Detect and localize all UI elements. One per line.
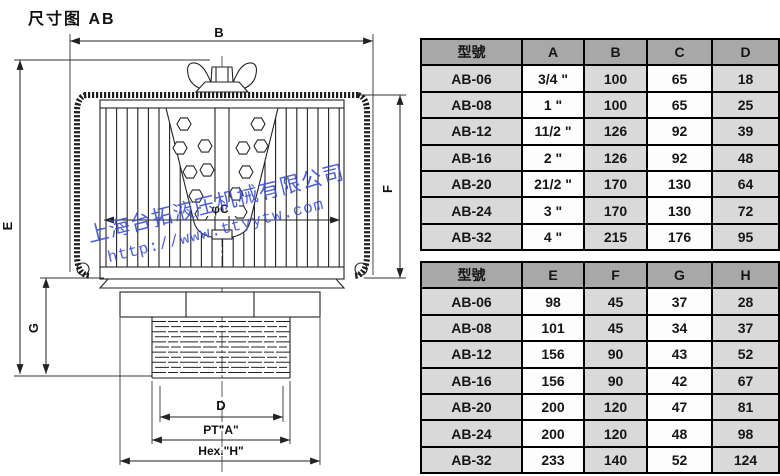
- value-cell: 101: [522, 315, 584, 341]
- table-row: AB-08101453437: [421, 315, 779, 341]
- model-cell: AB-32: [421, 447, 522, 473]
- bolt-end: [212, 230, 232, 239]
- value-cell: 21/2 ": [522, 171, 584, 197]
- value-cell: 124: [712, 447, 779, 473]
- value-cell: 45: [584, 288, 647, 314]
- table-row: AB-242001204898: [421, 420, 779, 446]
- model-cell: AB-08: [421, 92, 522, 118]
- dim-g: G: [26, 278, 104, 374]
- column-header: D: [712, 39, 779, 65]
- hex-flange: [120, 292, 320, 317]
- model-cell: AB-06: [421, 65, 522, 91]
- header-row: 型號ABCD: [421, 39, 779, 65]
- cap-left-wall: [77, 95, 90, 276]
- value-cell: 215: [584, 224, 647, 250]
- value-cell: 37: [712, 315, 779, 341]
- value-cell: 45: [584, 315, 647, 341]
- value-cell: 4 ": [522, 224, 584, 250]
- value-cell: 98: [712, 420, 779, 446]
- value-cell: 65: [647, 65, 712, 91]
- top-plate: [100, 100, 344, 108]
- value-cell: 48: [712, 145, 779, 171]
- column-header: H: [712, 262, 779, 288]
- value-cell: 126: [584, 145, 647, 171]
- dim-label-pt-a: PT"A": [203, 423, 238, 437]
- value-cell: 100: [584, 92, 647, 118]
- model-cell: AB-24: [421, 420, 522, 446]
- value-cell: 200: [522, 394, 584, 420]
- value-cell: 2 ": [522, 145, 584, 171]
- value-cell: 95: [712, 224, 779, 250]
- dim-label-c: φC: [211, 202, 229, 216]
- value-cell: 1 ": [522, 92, 584, 118]
- value-cell: 130: [647, 197, 712, 223]
- value-cell: 43: [647, 341, 712, 367]
- nut-washer: [196, 82, 248, 92]
- value-cell: 28: [712, 288, 779, 314]
- thread-lines: [152, 322, 290, 373]
- table-row: AB-081 "1006525: [421, 92, 779, 118]
- value-cell: 98: [522, 288, 584, 314]
- cap-right-wall: [354, 95, 367, 276]
- model-cell: AB-06: [421, 288, 522, 314]
- dim-label-hex-h: Hex."H": [198, 444, 243, 458]
- value-cell: 67: [712, 368, 779, 394]
- base-flare: [100, 279, 344, 288]
- column-header: 型號: [421, 39, 522, 65]
- dimension-drawing: B E F G φC: [0, 0, 420, 476]
- table-row: AB-162 "1269248: [421, 145, 779, 171]
- value-cell: 170: [584, 197, 647, 223]
- table-row: AB-0698453728: [421, 288, 779, 314]
- value-cell: 48: [647, 420, 712, 446]
- value-cell: 120: [584, 420, 647, 446]
- column-header: B: [584, 39, 647, 65]
- value-cell: 65: [647, 92, 712, 118]
- dim-label-f: F: [380, 185, 395, 193]
- value-cell: 92: [647, 145, 712, 171]
- column-header: E: [522, 262, 584, 288]
- value-cell: 3/4 ": [522, 65, 584, 91]
- table-row: AB-202001204781: [421, 394, 779, 420]
- value-cell: 37: [647, 288, 712, 314]
- dim-label-g: G: [26, 323, 41, 333]
- value-cell: 156: [522, 341, 584, 367]
- dimension-table-efgh: 型號EFGHAB-0698453728AB-08101453437AB-1215…: [420, 261, 780, 474]
- value-cell: 92: [647, 118, 712, 144]
- value-cell: 42: [647, 368, 712, 394]
- model-cell: AB-16: [421, 368, 522, 394]
- value-cell: 100: [584, 65, 647, 91]
- table-row: AB-324 "21517695: [421, 224, 779, 250]
- model-cell: AB-12: [421, 118, 522, 144]
- table-row: AB-12156904352: [421, 341, 779, 367]
- wing-nut: [188, 63, 257, 92]
- column-header: C: [647, 39, 712, 65]
- table-row: AB-3223314052124: [421, 447, 779, 473]
- value-cell: 90: [584, 368, 647, 394]
- nut-body: [211, 67, 233, 82]
- column-header: G: [647, 262, 712, 288]
- value-cell: 3 ": [522, 197, 584, 223]
- table-row: AB-1211/2 "1269239: [421, 118, 779, 144]
- value-cell: 34: [647, 315, 712, 341]
- model-cell: AB-24: [421, 197, 522, 223]
- model-cell: AB-20: [421, 171, 522, 197]
- dim-label-e: E: [0, 221, 15, 230]
- value-cell: 52: [712, 341, 779, 367]
- model-cell: AB-32: [421, 224, 522, 250]
- dim-label-d: D: [216, 398, 225, 413]
- column-header: 型號: [421, 262, 522, 288]
- table-row: AB-243 "17013072: [421, 197, 779, 223]
- value-cell: 176: [647, 224, 712, 250]
- column-header: F: [584, 262, 647, 288]
- table-row: AB-2021/2 "17013064: [421, 171, 779, 197]
- table-row: AB-16156904267: [421, 368, 779, 394]
- model-cell: AB-12: [421, 341, 522, 367]
- value-cell: 81: [712, 394, 779, 420]
- table-row: AB-063/4 "1006518: [421, 65, 779, 91]
- value-cell: 52: [647, 447, 712, 473]
- model-cell: AB-08: [421, 315, 522, 341]
- base-plate: [100, 267, 344, 279]
- dimension-table-abcd: 型號ABCDAB-063/4 "1006518AB-081 "1006525AB…: [420, 38, 780, 251]
- value-cell: 126: [584, 118, 647, 144]
- model-cell: AB-20: [421, 394, 522, 420]
- dim-d: D: [160, 386, 283, 422]
- value-cell: 200: [522, 420, 584, 446]
- value-cell: 140: [584, 447, 647, 473]
- value-cell: 120: [584, 394, 647, 420]
- value-cell: 156: [522, 368, 584, 394]
- dim-f: F: [360, 95, 406, 278]
- value-cell: 18: [712, 65, 779, 91]
- model-cell: AB-16: [421, 145, 522, 171]
- value-cell: 170: [584, 171, 647, 197]
- value-cell: 72: [712, 197, 779, 223]
- value-cell: 233: [522, 447, 584, 473]
- value-cell: 90: [584, 341, 647, 367]
- value-cell: 39: [712, 118, 779, 144]
- value-cell: 11/2 ": [522, 118, 584, 144]
- filter-element: [166, 108, 278, 239]
- page-title: 尺寸图 AB: [28, 5, 116, 29]
- dim-label-b: B: [214, 25, 223, 40]
- value-cell: 25: [712, 92, 779, 118]
- value-cell: 130: [647, 171, 712, 197]
- value-cell: 47: [647, 394, 712, 420]
- spec-sheet: B E F G φC: [0, 0, 780, 476]
- header-row: 型號EFGH: [421, 262, 779, 288]
- column-header: A: [522, 39, 584, 65]
- value-cell: 64: [712, 171, 779, 197]
